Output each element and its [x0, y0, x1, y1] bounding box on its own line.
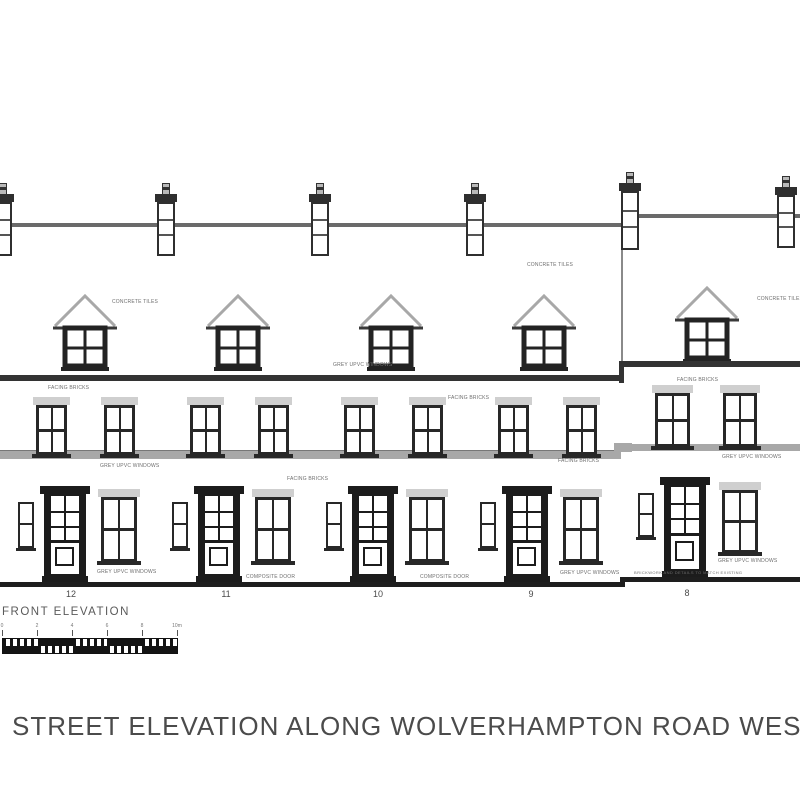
- drawing-title: STREET ELEVATION ALONG WOLVERHAMPTON ROA…: [12, 711, 800, 742]
- window-sill: [408, 454, 447, 458]
- street-elevation-drawing: 12111098CONCRETE TILESCONCRETE TILESCONC…: [0, 0, 800, 800]
- narrow-window: [326, 502, 342, 548]
- door-glazing-bar: [671, 503, 699, 505]
- chimney: [621, 191, 639, 250]
- annotation-label: COMPOSITE DOOR: [420, 574, 469, 580]
- scale-bar-segment: [73, 646, 108, 653]
- chimney-band: [313, 219, 327, 221]
- scale-bar-row: [3, 646, 177, 653]
- front-door: [669, 485, 701, 571]
- door-bottom-panel: [209, 547, 227, 566]
- window-sill: [405, 561, 449, 565]
- sash-window: [101, 497, 137, 562]
- dormer-window: [206, 292, 270, 372]
- annotation-label: CONCRETE TILES: [757, 296, 800, 302]
- window-rail: [566, 528, 596, 531]
- door-glazing-bar: [51, 526, 79, 528]
- window-sill: [170, 548, 190, 551]
- narrow-window: [18, 502, 34, 548]
- house-number: 9: [528, 589, 533, 599]
- window-sill: [324, 548, 344, 551]
- chimney: [0, 202, 12, 256]
- chimney-pot-band: [163, 187, 169, 190]
- front-door: [203, 494, 235, 576]
- narrow-window: [638, 493, 654, 537]
- scale-tick: [142, 630, 143, 636]
- window-rail: [501, 429, 526, 432]
- door-pilaster: [701, 485, 706, 571]
- sash-window: [722, 490, 758, 553]
- chimney-cap: [0, 194, 14, 202]
- chimney-pot-band: [783, 180, 789, 183]
- annotation-label: FACING BRICKS: [287, 476, 328, 482]
- window-rail: [104, 528, 134, 531]
- door-cornice: [502, 486, 552, 494]
- annotation-label: FACING BRICKS: [677, 377, 718, 383]
- window-rail: [725, 520, 755, 523]
- scale-tick-label: 10m: [172, 623, 182, 629]
- door-mid-rail: [205, 540, 233, 543]
- chimney-band: [623, 210, 637, 212]
- scale-bar-segment: [142, 646, 177, 653]
- house-number: 11: [221, 589, 230, 599]
- door-glazing-bar: [513, 511, 541, 513]
- door-glazing-bar: [684, 487, 686, 533]
- chimney: [777, 195, 795, 248]
- chimney-pot-band: [317, 187, 323, 190]
- window-lintel: [341, 397, 378, 405]
- elevation-title: FRONT ELEVATION: [2, 606, 130, 618]
- window-rail: [174, 523, 186, 525]
- window-sill: [100, 454, 139, 458]
- window-lintel: [406, 489, 448, 497]
- scale-bar-segment: [107, 639, 142, 646]
- scale-tick: [2, 630, 3, 636]
- door-pilaster: [81, 494, 86, 576]
- eaves-line: [0, 375, 621, 381]
- chimney-pot-band: [627, 176, 633, 179]
- sash-window: [190, 405, 221, 455]
- annotation-label: FACING BRICKS: [48, 385, 89, 391]
- window-lintel: [563, 397, 600, 405]
- scale-tick: [72, 630, 73, 636]
- chimney-pot-band: [0, 187, 6, 190]
- sash-window: [498, 405, 529, 455]
- door-mid-rail: [51, 540, 79, 543]
- window-rail: [39, 429, 64, 432]
- window-lintel: [98, 489, 140, 497]
- window-sill: [719, 446, 761, 450]
- door-bottom-panel: [675, 541, 693, 561]
- sash-window: [566, 405, 597, 455]
- chimney-band: [159, 234, 173, 236]
- chimney-band: [623, 226, 637, 228]
- sash-window: [655, 393, 690, 447]
- door-glazing-bar: [526, 496, 528, 540]
- window-rail: [20, 523, 32, 525]
- sash-window: [258, 405, 289, 455]
- door-bottom-panel: [55, 547, 73, 566]
- window-rail: [658, 419, 687, 422]
- window-rail: [569, 429, 594, 432]
- chimney-cap: [464, 194, 486, 202]
- dormer-window: [53, 292, 117, 372]
- scale-bar-segment: [3, 646, 38, 653]
- chimney-pot-band: [472, 187, 478, 190]
- sash-window: [409, 497, 445, 562]
- narrow-window: [172, 502, 188, 548]
- scale-tick-label: 2: [36, 623, 39, 629]
- window-lintel: [720, 385, 760, 393]
- scale-tick: [177, 630, 178, 636]
- annotation-label: GREY UPVC WINDOWS: [560, 570, 619, 576]
- scale-bar-segment: [142, 639, 177, 646]
- window-lintel: [719, 482, 761, 490]
- scale-bar-segment: [3, 639, 38, 646]
- window-rail: [261, 429, 286, 432]
- scale-bar-segment: [107, 646, 142, 653]
- window-sill: [340, 454, 379, 458]
- window-sill: [186, 454, 225, 458]
- annotation-label: COMPOSITE DOOR: [246, 574, 295, 580]
- chimney-band: [0, 219, 10, 221]
- window-rail: [258, 528, 288, 531]
- scale-tick: [37, 630, 38, 636]
- annotation-label: GREY UPVC WINDOWS: [718, 558, 777, 564]
- door-mid-rail: [671, 533, 699, 536]
- door-mid-rail: [513, 540, 541, 543]
- window-sill: [559, 561, 603, 565]
- sash-window: [255, 497, 291, 562]
- chimney-band: [0, 234, 10, 236]
- window-rail: [726, 419, 754, 422]
- sash-window: [36, 405, 67, 455]
- door-mid-rail: [359, 540, 387, 543]
- chimney: [311, 202, 329, 256]
- chimney-cap: [775, 187, 797, 195]
- window-sill: [636, 537, 656, 540]
- front-door: [511, 494, 543, 576]
- window-rail: [107, 429, 132, 432]
- window-sill: [478, 548, 498, 551]
- scale-tick-label: 4: [71, 623, 74, 629]
- annotation-label: FACING BRICKS: [558, 458, 599, 464]
- scale-tick-label: 6: [106, 623, 109, 629]
- house-number: 8: [684, 588, 689, 598]
- window-sill: [251, 561, 295, 565]
- annotation-label: GREY UPVC WINDOWS: [97, 569, 156, 575]
- window-rail: [347, 429, 372, 432]
- door-glazing-bar: [218, 496, 220, 540]
- door-glazing-bar: [671, 518, 699, 520]
- chimney-cap: [155, 194, 177, 202]
- ground-step: [620, 577, 625, 587]
- door-glazing-bar: [359, 526, 387, 528]
- ground-line: [623, 577, 800, 582]
- dormer-window: [675, 284, 739, 364]
- annotation-label: BRICKWORK AND DETAILS TO MATCH EXISTING: [634, 570, 742, 575]
- door-glazing-bar: [64, 496, 66, 540]
- window-rail: [415, 429, 440, 432]
- sash-window: [104, 405, 135, 455]
- window-lintel: [255, 397, 292, 405]
- chimney-band: [313, 234, 327, 236]
- scale-bar-segment: [73, 639, 108, 646]
- chimney-cap: [619, 183, 641, 191]
- door-bottom-panel: [517, 547, 535, 566]
- window-sill: [16, 548, 36, 551]
- window-lintel: [252, 489, 294, 497]
- narrow-window: [480, 502, 496, 548]
- scale-tick-label: 8: [141, 623, 144, 629]
- window-rail: [482, 523, 494, 525]
- house-number: 10: [373, 589, 383, 599]
- house-number: 12: [66, 589, 76, 599]
- ridge-line: [622, 214, 800, 218]
- sash-window: [344, 405, 375, 455]
- window-lintel: [652, 385, 693, 393]
- scale-bar-segment: [38, 646, 73, 653]
- door-pilaster: [389, 494, 394, 576]
- window-sill: [718, 552, 762, 556]
- eaves-line: [621, 361, 800, 367]
- window-sill: [494, 454, 533, 458]
- door-glazing-bar: [205, 511, 233, 513]
- front-door: [49, 494, 81, 576]
- window-sill: [97, 561, 141, 565]
- window-lintel: [560, 489, 602, 497]
- window-sill: [254, 454, 293, 458]
- chimney-band: [779, 226, 793, 228]
- sash-window: [723, 393, 757, 447]
- chimney-cap: [309, 194, 331, 202]
- door-glazing-bar: [513, 526, 541, 528]
- door-pilaster: [543, 494, 548, 576]
- annotation-label: CONCRETE TILES: [527, 262, 573, 268]
- door-bottom-panel: [363, 547, 381, 566]
- window-lintel: [101, 397, 138, 405]
- window-rail: [640, 513, 652, 515]
- front-door: [357, 494, 389, 576]
- window-lintel: [409, 397, 446, 405]
- window-lintel: [495, 397, 532, 405]
- sash-window: [412, 405, 443, 455]
- dormer-window: [512, 292, 576, 372]
- door-cornice: [194, 486, 244, 494]
- window-lintel: [187, 397, 224, 405]
- annotation-label: GREY UPVC WINDOWS: [100, 463, 159, 469]
- door-glazing-bar: [359, 511, 387, 513]
- elevation-drawing-area: 12111098CONCRETE TILESCONCRETE TILESCONC…: [0, 0, 800, 800]
- scale-tick: [107, 630, 108, 636]
- window-lintel: [33, 397, 70, 405]
- chimney: [157, 202, 175, 256]
- door-glazing-bar: [205, 526, 233, 528]
- scale-bar-row: [3, 639, 177, 646]
- annotation-label: FACING BRICKS: [448, 395, 489, 401]
- window-rail: [328, 523, 340, 525]
- sash-window: [563, 497, 599, 562]
- eaves-step: [619, 361, 624, 383]
- door-glazing-bar: [372, 496, 374, 540]
- door-pilaster: [235, 494, 240, 576]
- ground-line: [0, 582, 623, 587]
- door-cornice: [40, 486, 90, 494]
- scale-bar-body: [2, 638, 178, 654]
- scale-bar-segment: [38, 639, 73, 646]
- door-cornice: [348, 486, 398, 494]
- annotation-label: GREY UPVC WINDOWS: [722, 454, 781, 460]
- door-cornice: [660, 477, 710, 485]
- chimney-band: [468, 234, 482, 236]
- chimney: [466, 202, 484, 256]
- window-sill: [32, 454, 71, 458]
- chimney-band: [159, 219, 173, 221]
- window-sill: [651, 446, 694, 450]
- chimney-band: [779, 212, 793, 214]
- door-glazing-bar: [51, 511, 79, 513]
- scale-tick-label: 0: [1, 623, 4, 629]
- annotation-label: GREY UPVC WINDOWS: [333, 362, 392, 368]
- dormer-window: [359, 292, 423, 372]
- annotation-label: CONCRETE TILES: [112, 299, 158, 305]
- window-rail: [412, 528, 442, 531]
- window-rail: [193, 429, 218, 432]
- chimney-band: [468, 219, 482, 221]
